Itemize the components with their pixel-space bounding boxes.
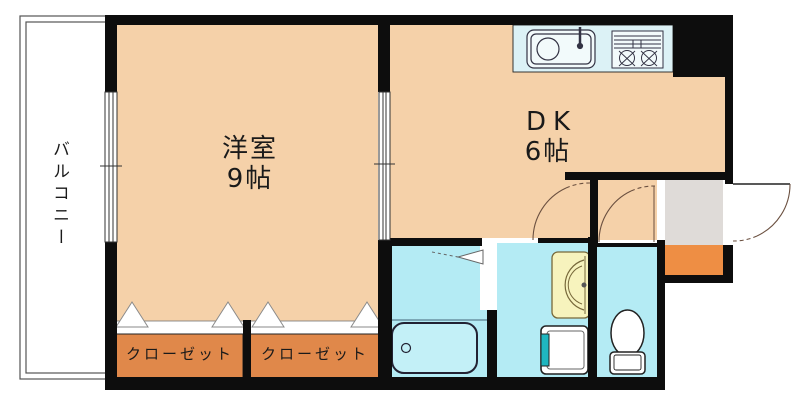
wall-partition-upper [378, 15, 390, 92]
entrance-floor [663, 180, 723, 245]
dk-label: DK [488, 109, 608, 135]
washing-machine-pan-icon [541, 326, 588, 374]
bathtub-icon [390, 320, 487, 373]
entrance-step [665, 245, 725, 275]
wall-left-lower [105, 242, 117, 378]
kitchen-sink-icon [527, 27, 595, 68]
kitchen-counter [513, 25, 673, 72]
wall-bath-wash-divider [487, 310, 497, 377]
wall-step-right [723, 245, 733, 283]
front-door-opening [723, 184, 733, 245]
closet-label-2: クローゼット [250, 347, 380, 362]
vanity-sink-icon [552, 252, 590, 318]
floorplan-drawing [0, 0, 800, 400]
wall-top [105, 15, 733, 25]
pillar-top-right [673, 15, 733, 77]
western-room-size: 9帖 [148, 166, 352, 192]
wall-toilet-top [597, 243, 657, 247]
wall-partition-lower [378, 240, 392, 390]
dk-size: 6帖 [488, 139, 608, 165]
stove-icon [612, 31, 663, 68]
toilet-icon [610, 310, 645, 374]
entrance-inner-frame [657, 180, 665, 240]
wall-left-upper [105, 15, 117, 92]
wall-wash-toilet-divider [588, 237, 597, 377]
wall-bathroom-top [382, 238, 482, 246]
dk-floor-lower [390, 178, 590, 238]
door-leaf-washroom [538, 238, 590, 243]
closet-label-1: クローゼット [117, 347, 243, 362]
wall-toilet-right [657, 240, 665, 390]
wall-below-step [665, 275, 733, 283]
hallway-floor [598, 180, 657, 240]
wall-hallway-left [590, 180, 598, 245]
wall-dk-bottom [565, 172, 733, 180]
front-door-arc-icon [733, 184, 790, 241]
floorplan: バルコニー 洋室 9帖 DK 6帖 クローゼット クローゼット [0, 0, 800, 400]
balcony-label: バルコニー [50, 140, 67, 250]
western-room-label: 洋室 [148, 136, 352, 162]
